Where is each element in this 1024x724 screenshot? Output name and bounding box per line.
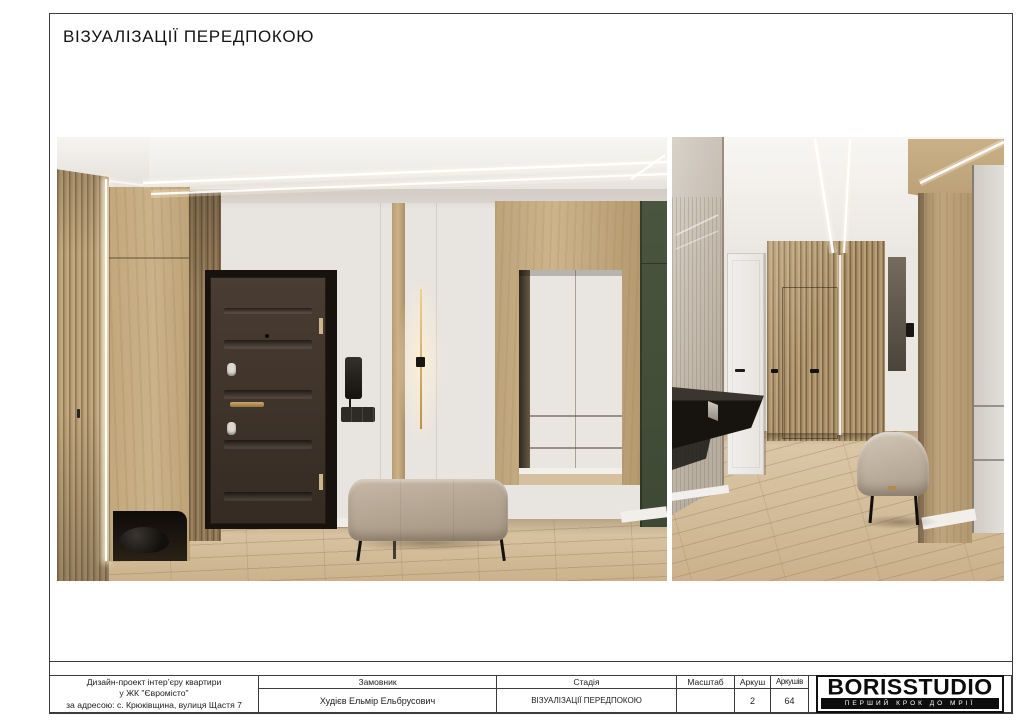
studio-logo-tagline: ПЕРШИЙ КРОК ДО МРІЇ (821, 698, 999, 709)
white-wardrobe-right (972, 165, 1004, 533)
door-gap-shadow (764, 253, 766, 475)
sheets-label: Аркушів (771, 676, 808, 689)
studio-logo: BORISSTUDIO ПЕРШИЙ КРОК ДО МРІЇ (816, 675, 1004, 713)
slat-door-handle (77, 409, 80, 418)
closet-drawer-seam (530, 447, 622, 449)
closet-drawer-seam (530, 415, 622, 417)
door-lock-bottom (227, 422, 236, 435)
studio-logo-name: BORISSTUDIO (827, 677, 992, 697)
door-molding (224, 390, 312, 399)
closet-shadow-gap (519, 270, 530, 485)
cabinet-seam (109, 257, 189, 259)
white-interior-door (727, 253, 764, 475)
sheet-label: Аркуш (735, 676, 770, 689)
door-molding (224, 308, 312, 314)
closet-floor (519, 474, 622, 485)
green-accent-panel (640, 201, 667, 527)
door-peephole (265, 334, 269, 338)
customer-cell: Замовник Худієв Ельмір Ельбрусович (258, 676, 496, 712)
project-line: Дизайн-проект інтер’єру квартири (50, 677, 258, 689)
led-strip-vertical (105, 179, 107, 561)
wall-lamp-mount (416, 357, 425, 367)
right-wall-niche (888, 257, 906, 371)
stage-cell: Стадія ВІЗУАЛІЗАЦІЇ ПЕРЕДПОКОЮ (496, 676, 676, 712)
sheets-total-cell: Аркушів 64 (770, 676, 808, 712)
stage-value: ВІЗУАЛІЗАЦІЇ ПЕРЕДПОКОЮ (497, 689, 676, 712)
scale-label: Масштаб (677, 676, 734, 689)
closet-top-shadow (519, 270, 622, 276)
door-hinge (319, 318, 323, 334)
door-hinge (319, 474, 323, 490)
closet-door-seam (575, 270, 576, 470)
hidden-door-handle (771, 369, 778, 373)
wardrobe-drawer-seam (974, 459, 1004, 461)
studio-logo-cell: BORISSTUDIO ПЕРШИЙ КРОК ДО МРІЇ (808, 676, 1011, 712)
door-handle (230, 402, 264, 407)
robot-vacuum (119, 527, 169, 553)
scale-value (677, 689, 734, 712)
bench (348, 479, 508, 541)
render-hallway-perspective-view (672, 137, 1004, 581)
drawing-area-divider (49, 661, 1012, 662)
green-panel-seam (642, 263, 667, 264)
render-hallway-front-view (57, 137, 667, 581)
hidden-door-handle (810, 369, 819, 373)
wall-panel-seam (380, 203, 381, 519)
sheet-value: 2 (735, 689, 770, 712)
stage-label: Стадія (497, 676, 676, 689)
closet-opening (519, 270, 622, 485)
wardrobe-cabinet (109, 187, 190, 561)
entrance-door (210, 277, 326, 524)
page-title: ВІЗУАЛІЗАЦІЇ ПЕРЕДПОКОЮ (63, 27, 314, 47)
sheets-value: 64 (771, 689, 808, 712)
mirror (672, 137, 724, 515)
door-molding (224, 492, 312, 501)
customer-value: Худієв Ельмір Ельбрусович (259, 689, 496, 712)
scale-cell: Масштаб (676, 676, 734, 712)
project-description-cell: Дизайн-проект інтер’єру квартири у ЖК "Є… (50, 676, 258, 712)
door-molding (224, 440, 312, 449)
project-line: за адресою: с. Крюківщина, вулиця Щастя … (50, 700, 258, 712)
door-molding (224, 340, 312, 349)
hidden-door-seam (782, 287, 838, 439)
door-panel-line (732, 260, 760, 468)
slat-wall (57, 137, 109, 581)
light-switch (341, 407, 375, 422)
design-sheet-page: ВІЗУАЛІЗАЦІЇ ПЕРЕДПОКОЮ (0, 0, 1024, 724)
bench-tag (888, 486, 896, 490)
project-line: у ЖК "Євромісто" (50, 688, 258, 700)
wardrobe-gap-shadow (972, 165, 974, 533)
door-handle (735, 369, 745, 372)
customer-label: Замовник (259, 676, 496, 689)
title-block: Дизайн-проект інтер’єру квартири у ЖК "Є… (49, 675, 1012, 713)
door-lock-top (227, 363, 236, 376)
intercom-unit (906, 323, 914, 337)
mirror-edge (722, 137, 724, 515)
intercom-handset (345, 357, 362, 399)
wardrobe-drawer-seam (974, 405, 1004, 407)
sheet-number-cell: Аркуш 2 (734, 676, 770, 712)
